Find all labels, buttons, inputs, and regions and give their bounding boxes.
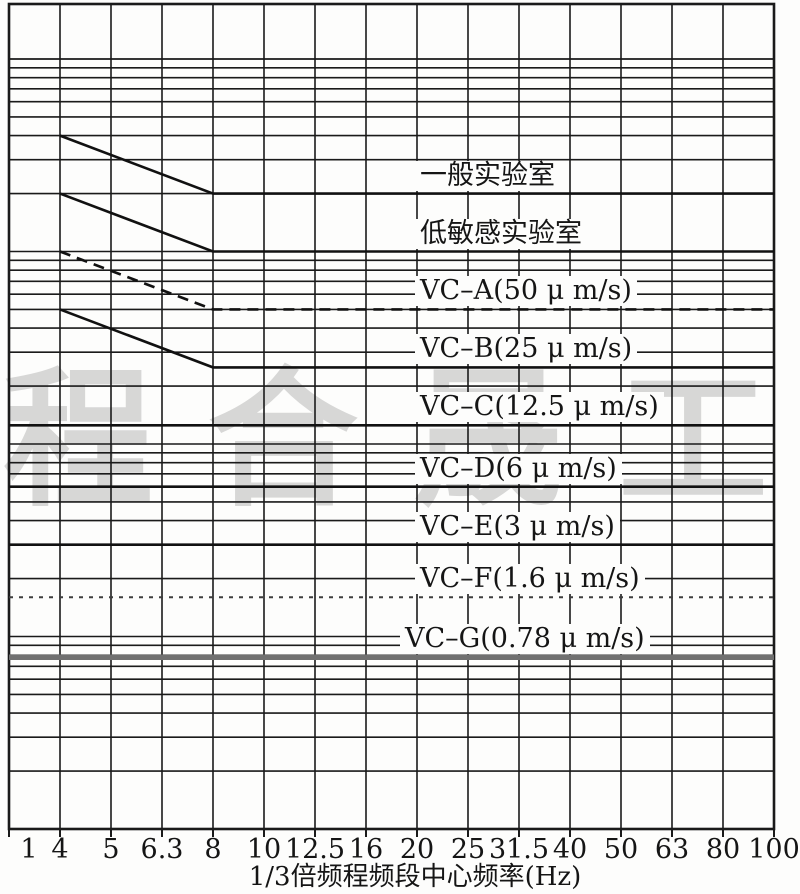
- x-tick-label-100: 100: [734, 836, 800, 864]
- curve-label-vc-a: VC–A(50 μ m/s): [415, 276, 637, 306]
- chart-grid-and-curves: [0, 0, 800, 894]
- curve-label-vc-f: VC–F(1.6 μ m/s): [415, 564, 645, 594]
- x-axis-title: 1/3倍频程频段中心频率(Hz): [150, 862, 680, 892]
- curve-label-vc-e: VC–E(3 μ m/s): [415, 512, 620, 542]
- curve-label-vc-c: VC–C(12.5 μ m/s): [415, 392, 664, 422]
- curve-label-general-lab: 一般实验室: [415, 161, 560, 191]
- curve-label-vc-d: VC–D(6 μ m/s): [415, 454, 622, 484]
- vc-criteria-chart: 合晟工程合晟工程 一般实验室低敏感实验室VC–A(50 μ m/s)VC–B(2…: [0, 0, 800, 894]
- curve-label-vc-b: VC–B(25 μ m/s): [415, 334, 637, 364]
- curve-label-low-sensitive-lab: 低敏感实验室: [415, 219, 587, 249]
- curve-label-vc-g: VC–G(0.78 μ m/s): [400, 624, 650, 654]
